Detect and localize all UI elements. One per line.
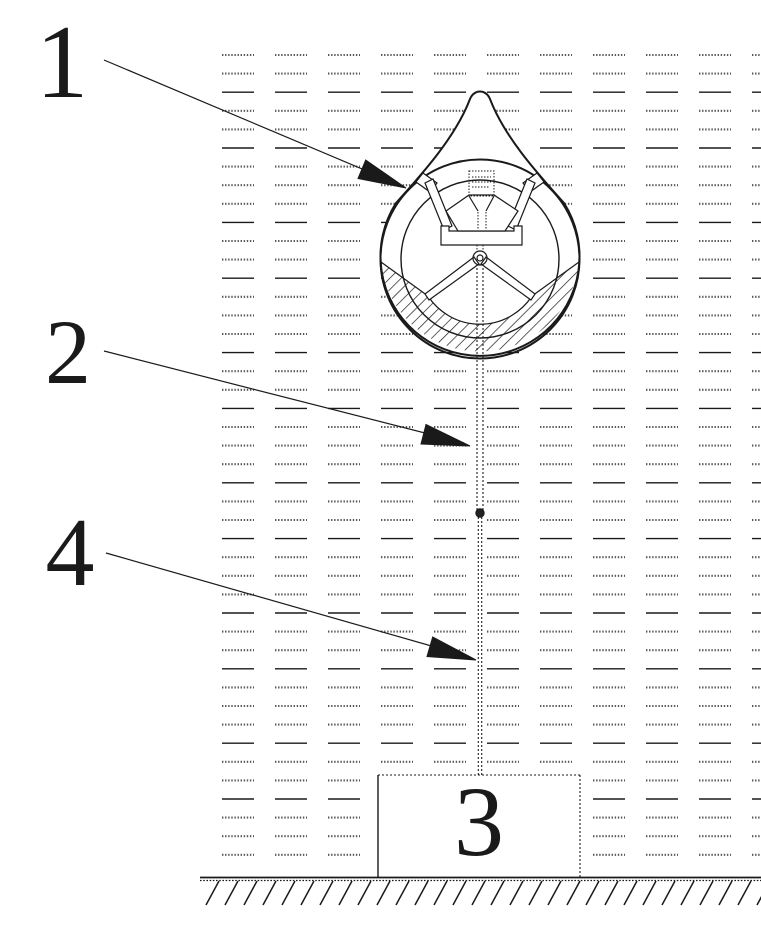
cable-connector — [476, 509, 484, 517]
seabed-hatch-stroke — [529, 881, 542, 905]
label-4: 4 — [46, 499, 95, 607]
seabed-hatch-stroke — [415, 881, 428, 905]
seabed-hatch-stroke — [377, 881, 390, 905]
leader-line-2 — [104, 351, 464, 443]
seabed-hatch-stroke — [453, 881, 466, 905]
seabed-hatch-stroke — [301, 881, 314, 905]
seabed-hatch-stroke — [586, 881, 599, 905]
seabed-hatch-stroke — [624, 881, 637, 905]
label-1: 1 — [36, 3, 89, 120]
seabed-hatch-stroke — [662, 881, 675, 905]
mooring-cable-lower — [478, 517, 481, 775]
arrowhead-1 — [358, 160, 406, 188]
anchor-block-group: 3 — [378, 766, 580, 878]
seabed-hatch-stroke — [206, 881, 219, 905]
label-2: 2 — [45, 301, 91, 403]
seabed-hatch-stroke — [605, 881, 618, 905]
buoy-assembly — [380, 92, 579, 359]
seabed-hatch — [206, 881, 761, 905]
seabed — [200, 878, 761, 906]
leader-line-1 — [104, 60, 400, 185]
seabed-hatch-stroke — [757, 881, 761, 905]
seabed-hatch-stroke — [396, 881, 409, 905]
seabed-hatch-stroke — [548, 881, 561, 905]
seabed-hatch-stroke — [225, 881, 238, 905]
patent-figure: 3 1 2 4 — [0, 0, 761, 925]
callouts: 1 2 4 — [36, 3, 476, 660]
seabed-hatch-stroke — [282, 881, 295, 905]
seabed-hatch-stroke — [339, 881, 352, 905]
anchor-label: 3 — [454, 766, 504, 877]
seabed-hatch-stroke — [567, 881, 580, 905]
seabed-hatch-stroke — [510, 881, 523, 905]
seabed-hatch-stroke — [719, 881, 732, 905]
seabed-hatch-stroke — [320, 881, 333, 905]
seabed-hatch-stroke — [738, 881, 751, 905]
seabed-hatch-stroke — [491, 881, 504, 905]
seabed-hatch-stroke — [681, 881, 694, 905]
seabed-hatch-stroke — [700, 881, 713, 905]
leader-line-4 — [106, 553, 470, 657]
seabed-hatch-stroke — [643, 881, 656, 905]
seabed-hatch-stroke — [358, 881, 371, 905]
figure-canvas: 3 1 2 4 — [0, 0, 761, 925]
seabed-hatch-stroke — [434, 881, 447, 905]
seabed-hatch-stroke — [244, 881, 257, 905]
arrowhead-4 — [427, 637, 476, 660]
seabed-hatch-stroke — [263, 881, 276, 905]
seabed-hatch-stroke — [472, 881, 485, 905]
